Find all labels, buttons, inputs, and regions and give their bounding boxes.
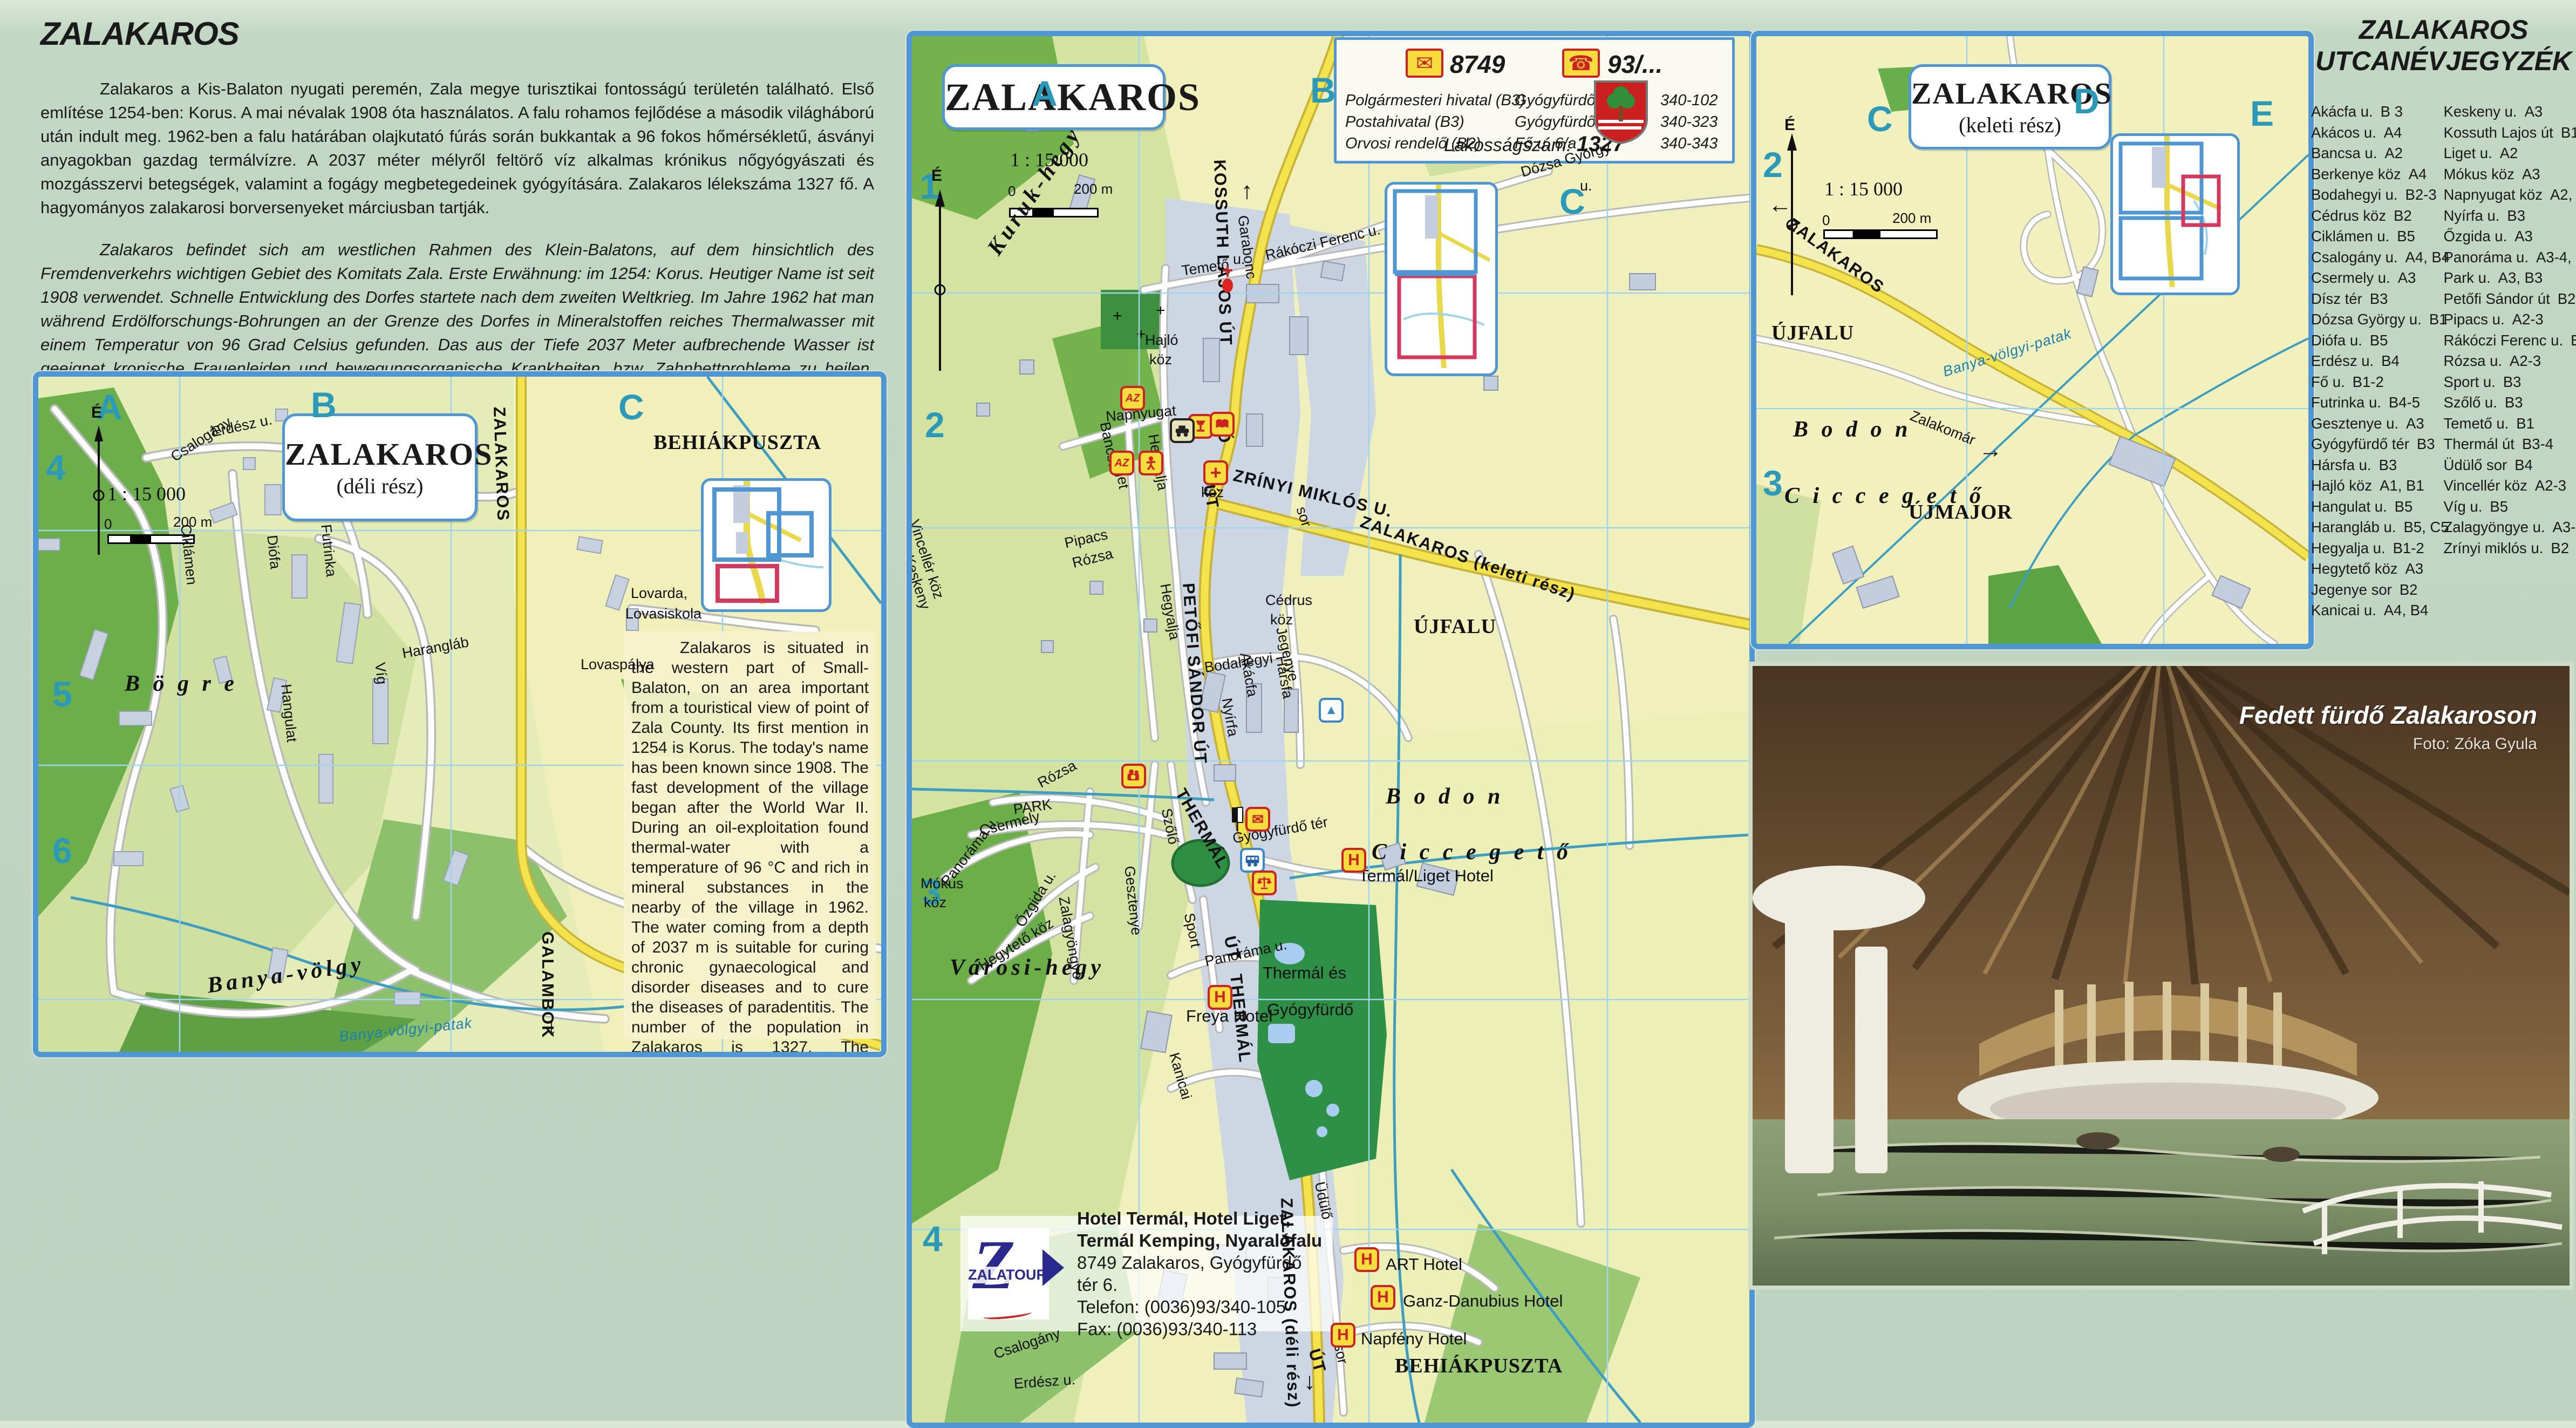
- camera-icon: [1121, 764, 1146, 788]
- info-place: Postahivatal (B3): [1345, 113, 1464, 131]
- map-label: E: [2250, 93, 2274, 134]
- index-entry: Nyírfa u.B3: [2444, 206, 2576, 227]
- street-index-title: ZALAKAROS UTCANÉVJEGYZÉK: [2311, 14, 2576, 77]
- south-overview-inset: [701, 478, 832, 612]
- h-icon: H: [1331, 1323, 1355, 1348]
- map-label: Ganz-Danubius Hotel: [1403, 1291, 1563, 1311]
- map-south-panel: ZALAKAROS (déli rész) Zalakaros is situa…: [33, 371, 887, 1057]
- index-entry: Temető u.B1: [2444, 413, 2576, 434]
- index-column-1: Akácfa u.B 3Akácos u.A4Bancsa u.A2Berken…: [2311, 101, 2444, 621]
- map-label: BEHIÁKPUSZTA: [653, 431, 821, 454]
- thermal-bath-photo: Fedett fürdő Zalakaroson Foto: Zóka Gyul…: [1748, 662, 2574, 1290]
- index-entry: Rózsa u.A2-3: [2444, 351, 2576, 372]
- index-entry: Bodahegyi u.B2-3: [2311, 185, 2444, 206]
- h-icon: H: [1341, 848, 1366, 873]
- svg-text:+: +: [1113, 307, 1122, 325]
- zalatour-logo: Z ZALATOUR: [968, 1228, 1049, 1320]
- index-entry: Víg u.B5: [2444, 497, 2576, 518]
- tent-icon: ▲: [1319, 698, 1344, 723]
- svg-text:+: +: [1156, 302, 1166, 319]
- index-entry: Zrínyi miklós u.B2: [2444, 538, 2576, 559]
- map-label: 3: [1763, 463, 1783, 504]
- index-entry: Hegytető közA3: [2311, 559, 2444, 580]
- map-label: B: [1310, 70, 1336, 111]
- index-entry: Kossuth Lajos útB1: [2444, 123, 2576, 144]
- env-icon: ✉: [1245, 807, 1270, 832]
- map-label: 2: [925, 404, 945, 445]
- east-overview-inset: [2110, 133, 2240, 295]
- map-label: Hajló: [1145, 332, 1178, 349]
- scales-icon: [1252, 871, 1277, 895]
- h-icon: H: [1354, 1247, 1379, 1272]
- map-label: ÚJFALU: [1771, 321, 1854, 345]
- map-label: 4: [923, 1218, 943, 1259]
- index-entry: Ciklámen u.B5: [2311, 226, 2444, 247]
- map-label: ↓: [546, 1014, 557, 1041]
- map-label: A: [1032, 73, 1058, 114]
- map-label: Lovasiskola: [625, 606, 701, 622]
- index-entry: Zalagyöngye u.A3-4: [2444, 517, 2576, 538]
- index-column-2: Keskeny u.A3Kossuth Lajos útB1Liget u.A2…: [2444, 101, 2576, 621]
- map-label: C: [1867, 98, 1893, 139]
- index-entry: Pipacs u.A2-3: [2444, 309, 2576, 330]
- intro-paragraph-hungarian: Zalakaros a Kis-Balaton nyugati peremén,…: [40, 77, 874, 220]
- index-entry: Hajló közA1, B1: [2311, 475, 2444, 497]
- book-icon: [1210, 412, 1235, 437]
- phone-prefix: 93/...: [1607, 50, 1662, 79]
- map-label: u.: [1580, 178, 1592, 194]
- map-label: C i c c e g e t ő: [1372, 839, 1572, 865]
- english-description: Zalakaros is situated in the western par…: [624, 631, 876, 1039]
- shield-icon: [1231, 807, 1243, 832]
- map-label: Lovaspálya: [581, 656, 655, 673]
- zalatour-brand: ZALATOUR: [968, 1267, 1047, 1283]
- index-entry: Csermely u.A3: [2311, 268, 2444, 289]
- scale-bar: [1823, 229, 1938, 239]
- page-title: ZALAKAROS: [40, 15, 874, 52]
- index-entry: Őzgida u.A3: [2444, 226, 2576, 247]
- index-entry: Jegenye sorB2: [2311, 580, 2444, 601]
- map-label: Víg: [371, 662, 390, 685]
- index-entry: Vincellér közA2-3: [2444, 475, 2576, 497]
- index-entry: Rákóczi Ferenc u.B1: [2444, 330, 2576, 351]
- map-label: ÚJMAJOR: [1909, 500, 2013, 524]
- index-entry: Liget u.A2: [2444, 143, 2576, 164]
- map-label: Mókus: [921, 875, 964, 892]
- cross-icon: +: [1203, 460, 1228, 485]
- index-entry: Dísz térB3: [2311, 289, 2444, 310]
- south-map-title: ZALAKAROS: [285, 436, 475, 472]
- map-label: 0: [1822, 212, 1830, 229]
- map-label: 200 m: [1074, 181, 1113, 198]
- map-label: köz: [1270, 611, 1293, 628]
- map-label: Cédrus: [1265, 592, 1312, 609]
- index-entry: Sport u.B3: [2444, 372, 2576, 393]
- svg-text:+: +: [1136, 325, 1146, 343]
- map-label: ↑: [1241, 178, 1253, 205]
- info-phone: 340-102: [1660, 92, 1718, 110]
- map-label: Lovarda,: [631, 585, 687, 602]
- index-entry: Berkenye közA4: [2311, 164, 2444, 185]
- map-label: B: [311, 384, 337, 425]
- az-icon: AZ: [1120, 386, 1145, 411]
- index-entry: Hangulat u.B5: [2311, 497, 2444, 518]
- index-entry: Mókus közA3: [2444, 164, 2576, 185]
- map-label: 1 : 15 000: [1824, 178, 1903, 200]
- map-label: Thermál és: [1263, 963, 1346, 983]
- h-icon: H: [1371, 1285, 1395, 1310]
- photo-credit: Foto: Zóka Gyula: [2413, 735, 2537, 753]
- map-label: 200 m: [1892, 210, 1931, 227]
- map-label: B o d o n: [1793, 417, 1911, 443]
- postal-code: 8749: [1450, 50, 1505, 79]
- index-entry: Erdész u.B4: [2311, 351, 2444, 372]
- index-entry: Csalogány u.A4, B4: [2311, 247, 2444, 268]
- index-entry: Bancsa u.A2: [2311, 143, 2444, 164]
- map-label: É: [931, 167, 942, 185]
- index-entry: Gyógyfürdő térB3: [2311, 434, 2444, 455]
- map-label: BEHIÁKPUSZTA: [1395, 1354, 1563, 1378]
- south-map-subtitle: (déli rész): [285, 473, 475, 499]
- map-label: C: [618, 386, 644, 427]
- map-label: 0: [104, 516, 112, 533]
- index-entry: Thermál útB3-4: [2444, 434, 2576, 455]
- main-overview-inset: [1385, 182, 1498, 376]
- index-entry: Keskeny u.A3: [2444, 101, 2576, 123]
- map-label: B ö g r e: [125, 671, 238, 697]
- index-entry: Diófa u.B5: [2311, 330, 2444, 351]
- index-entry: Kanicai u.A4, B4: [2311, 600, 2444, 621]
- municipal-info-box: ✉ 8749 ☎ 93/... Polgármesteri hivatal (B…: [1334, 37, 1735, 164]
- index-entry: Hársfa u.B3: [2311, 455, 2444, 476]
- index-entry: Napnyugat közA2, B2: [2444, 185, 2576, 206]
- az-icon: AZ: [1109, 451, 1134, 475]
- map-label: köz: [1149, 351, 1172, 368]
- map-label: u.: [1233, 251, 1245, 268]
- h-icon: H: [1208, 985, 1232, 1010]
- car-icon: [1170, 418, 1195, 443]
- kid-icon: [1139, 451, 1163, 475]
- street-index: ZALAKAROS UTCANÉVJEGYZÉK Akácfa u.B 3Aká…: [2311, 14, 2576, 621]
- index-entry: Petőfi Sándor útB2-3: [2444, 289, 2576, 310]
- zalatour-arrow-icon: [1042, 1249, 1064, 1286]
- map-label: Gyógyfürdő: [1267, 1000, 1353, 1019]
- index-entry: Dózsa György u.B1: [2311, 309, 2444, 330]
- map-label: Napfény Hotel: [1361, 1329, 1467, 1349]
- mail-icon: ✉: [1406, 49, 1443, 78]
- population-line: Lakosságszám: 1327: [1337, 132, 1732, 157]
- map-label: köz: [924, 894, 946, 911]
- map-east-panel: ZALAKAROS (keleti rész) CDE23É1 : 15 000…: [1751, 31, 2314, 649]
- index-entry: Üdülő sorB4: [2444, 455, 2576, 476]
- index-entry: Gesztenye u.A3: [2311, 413, 2444, 434]
- zalatour-ad-box: Z ZALATOUR Hotel Termál, Hotel Liget,Ter…: [960, 1216, 1333, 1331]
- map-label: 4: [46, 447, 66, 488]
- phone-icon: ☎: [1562, 49, 1600, 78]
- map-label: Termál/Liget Hotel: [1359, 866, 1494, 886]
- map-label: 1 : 15 000: [107, 482, 186, 505]
- info-phone: 340-323: [1660, 113, 1718, 131]
- index-entry: Harangláb u.B5, C5: [2311, 517, 2444, 538]
- map-label: É: [1784, 116, 1795, 134]
- map-main-panel: +++ ZALAKAROS ✉ 8749 ☎ 93/... Polgármest…: [907, 31, 1755, 1428]
- map-label: ZALAKAROS: [489, 406, 513, 522]
- map-label: 6: [52, 830, 72, 871]
- map-label: D: [2074, 80, 2100, 121]
- town-crest: [1593, 79, 1649, 147]
- index-entry: Futrinka u.B4-5: [2311, 392, 2444, 413]
- index-entry: Hegyalja u.B1-2: [2311, 538, 2444, 559]
- bus-icon: [1240, 848, 1265, 873]
- map-label: É: [91, 404, 102, 422]
- index-entry: Fő u.B1-2: [2311, 372, 2444, 393]
- photo-caption: Fedett fürdő Zalakaroson: [2239, 701, 2537, 730]
- map-label: köz: [1201, 484, 1224, 501]
- map-label: →: [1979, 437, 2002, 464]
- index-entry: Cédrus közB2: [2311, 206, 2444, 227]
- index-entry: Akácfa u.B 3: [2311, 101, 2444, 123]
- map-label: 2: [1763, 144, 1783, 185]
- index-entry: Panoráma u.A3-4, B3: [2444, 247, 2576, 268]
- map-label: Diófa: [263, 534, 283, 570]
- index-entry: Szőlő u.B3: [2444, 392, 2576, 413]
- photo-graphic: [1753, 666, 2570, 1286]
- map-label: ←: [1768, 192, 1792, 219]
- population-label: Lakosságszám:: [1444, 135, 1571, 155]
- index-entry: Park u.A3, B3: [2444, 268, 2576, 289]
- map-label: 5: [52, 674, 72, 715]
- map-label: B o d o n: [1386, 784, 1504, 810]
- south-map-titlebox: ZALAKAROS (déli rész): [282, 413, 478, 521]
- map-label: ART Hotel: [1386, 1255, 1462, 1274]
- map-label: ÚJFALU: [1414, 615, 1496, 638]
- info-place: Polgármesteri hivatal (B3): [1345, 92, 1525, 110]
- church-icon: [1221, 265, 1235, 293]
- index-entry: Akácos u.A4: [2311, 123, 2444, 144]
